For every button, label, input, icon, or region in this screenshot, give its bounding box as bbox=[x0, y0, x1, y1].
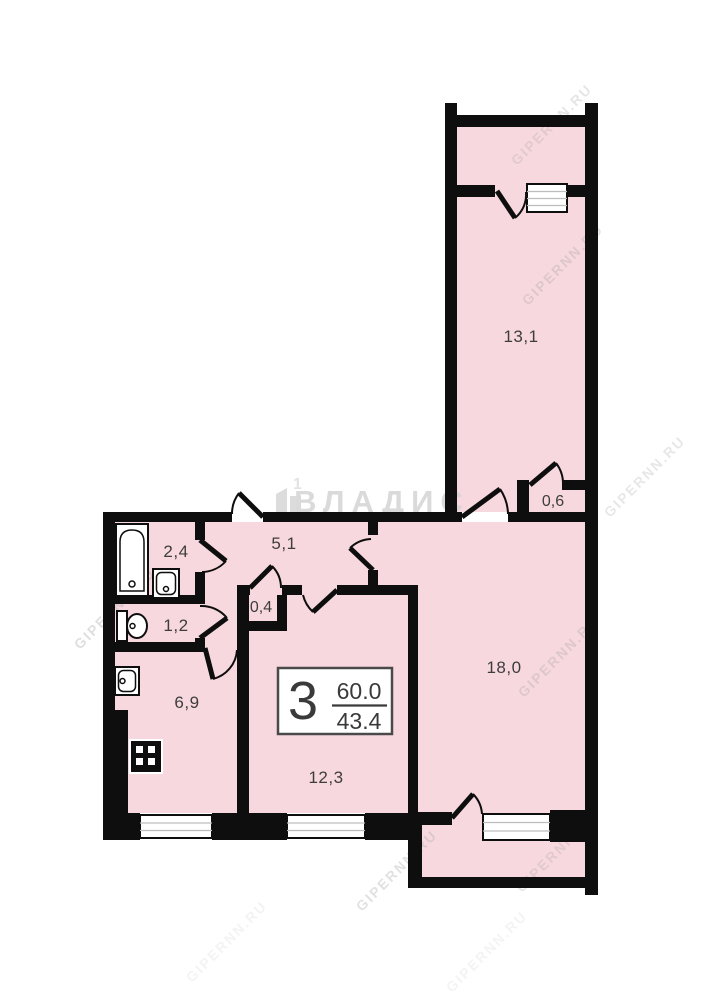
window-bedroom bbox=[287, 815, 365, 838]
wall bbox=[368, 522, 378, 535]
floor-plan-page: 1 ВЛАДИС GIPERNN.RU GIPERNN.RU GIPERNN.R… bbox=[0, 0, 716, 999]
room-area-label-closet-small: 0,4 bbox=[250, 599, 272, 616]
wall bbox=[368, 570, 378, 595]
kitchen-sink bbox=[115, 667, 139, 695]
room-area-label-bedroom: 12,3 bbox=[308, 768, 343, 787]
stove bbox=[129, 739, 163, 774]
wall bbox=[212, 813, 287, 840]
wall bbox=[277, 595, 287, 621]
toilet bbox=[117, 611, 147, 641]
living-area: 43.4 bbox=[337, 708, 382, 734]
wall bbox=[567, 185, 585, 197]
room-area-label-loggia: 13,1 bbox=[503, 327, 538, 346]
wall bbox=[457, 185, 495, 197]
wall bbox=[550, 810, 585, 842]
wall bbox=[108, 642, 205, 652]
rooms-count: 3 bbox=[288, 671, 318, 731]
room-area-label-bathroom: 2,4 bbox=[163, 542, 188, 561]
wall bbox=[237, 621, 287, 631]
wall bbox=[195, 522, 205, 540]
room-area-label-closet-top: 0,6 bbox=[542, 493, 564, 510]
wall bbox=[508, 512, 598, 522]
wall bbox=[408, 812, 452, 825]
wall bbox=[237, 585, 249, 813]
apartment-info-box: 3 60.0 43.4 bbox=[278, 668, 392, 734]
wall bbox=[445, 115, 598, 127]
total-area: 60.0 bbox=[337, 678, 382, 704]
bathroom-sink bbox=[153, 569, 179, 598]
wall bbox=[408, 585, 418, 813]
wall bbox=[263, 512, 457, 522]
wall bbox=[585, 103, 598, 895]
window-kitchen bbox=[140, 815, 212, 838]
window-south-balcony bbox=[483, 814, 550, 840]
wall bbox=[282, 585, 302, 595]
wall bbox=[445, 103, 457, 522]
room-area-label-wc: 1,2 bbox=[163, 616, 188, 635]
wall bbox=[365, 813, 410, 840]
wall bbox=[195, 572, 205, 595]
wall bbox=[103, 813, 140, 840]
room-area-label-living-room: 18,0 bbox=[486, 658, 521, 677]
wall bbox=[103, 512, 232, 522]
wall bbox=[562, 480, 585, 490]
room-area-label-hallway: 5,1 bbox=[271, 534, 296, 553]
window-loggia-divider bbox=[527, 184, 567, 212]
wall bbox=[237, 585, 250, 595]
room-area-label-kitchen: 6,9 bbox=[174, 693, 199, 712]
floor-plan-canvas: 1 ВЛАДИС GIPERNN.RU GIPERNN.RU GIPERNN.R… bbox=[0, 0, 716, 999]
wall bbox=[408, 877, 598, 888]
bathtub bbox=[116, 524, 148, 596]
